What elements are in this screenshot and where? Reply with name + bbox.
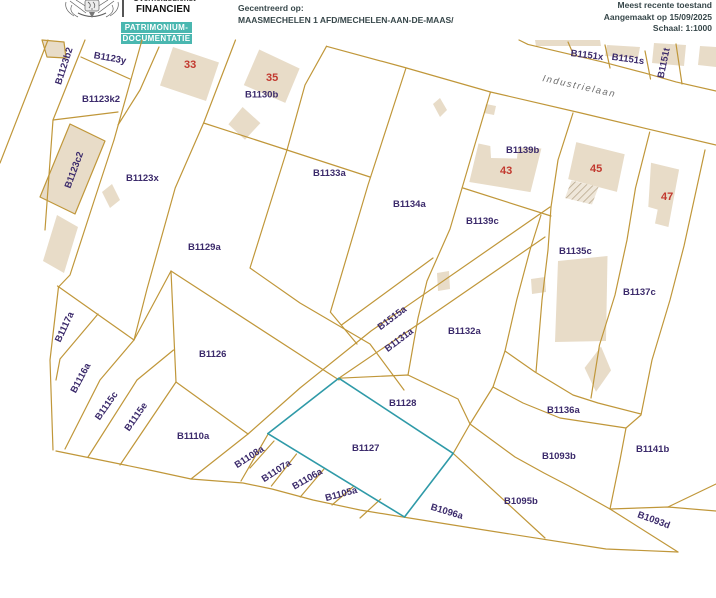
svg-text:B1107a: B1107a bbox=[260, 457, 294, 484]
svg-text:B1139c: B1139c bbox=[466, 216, 499, 227]
svg-text:B1093b: B1093b bbox=[542, 451, 576, 462]
svg-text:43: 43 bbox=[500, 165, 512, 177]
svg-text:B1134a: B1134a bbox=[393, 199, 426, 210]
svg-text:B1127: B1127 bbox=[352, 443, 379, 454]
svg-text:B1137c: B1137c bbox=[623, 287, 656, 298]
svg-text:B1136a: B1136a bbox=[547, 405, 580, 416]
svg-text:47: 47 bbox=[661, 191, 673, 203]
svg-text:B1126: B1126 bbox=[199, 349, 226, 360]
svg-text:B1130b: B1130b bbox=[245, 90, 278, 101]
svg-text:B1135c: B1135c bbox=[559, 246, 592, 257]
svg-text:B1132a: B1132a bbox=[448, 326, 481, 337]
svg-text:B1131a: B1131a bbox=[383, 326, 416, 355]
svg-text:B1515a: B1515a bbox=[376, 304, 410, 333]
svg-text:B1129a: B1129a bbox=[188, 242, 221, 253]
svg-text:B1116a: B1116a bbox=[69, 361, 94, 395]
svg-text:45: 45 bbox=[590, 163, 602, 175]
svg-text:Industrielaan: Industrielaan bbox=[541, 73, 617, 100]
svg-text:B1095b: B1095b bbox=[504, 496, 538, 507]
svg-text:33: 33 bbox=[184, 59, 196, 71]
svg-text:B1133a: B1133a bbox=[313, 168, 346, 179]
svg-text:B1128: B1128 bbox=[389, 398, 416, 409]
svg-text:35: 35 bbox=[266, 72, 278, 84]
svg-text:B1117a: B1117a bbox=[53, 310, 77, 345]
svg-text:B1110a: B1110a bbox=[177, 431, 210, 442]
svg-text:B1115c: B1115c bbox=[93, 390, 120, 423]
svg-text:B1096a: B1096a bbox=[429, 502, 465, 522]
svg-text:B1151x: B1151x bbox=[570, 48, 605, 63]
svg-text:B1139b: B1139b bbox=[506, 145, 539, 156]
svg-text:B1141b: B1141b bbox=[636, 444, 669, 455]
svg-text:B1105a: B1105a bbox=[324, 485, 359, 504]
svg-text:B1123x: B1123x bbox=[126, 173, 159, 184]
svg-text:B1123k2: B1123k2 bbox=[82, 94, 120, 105]
svg-text:B1115e: B1115e bbox=[123, 401, 150, 434]
